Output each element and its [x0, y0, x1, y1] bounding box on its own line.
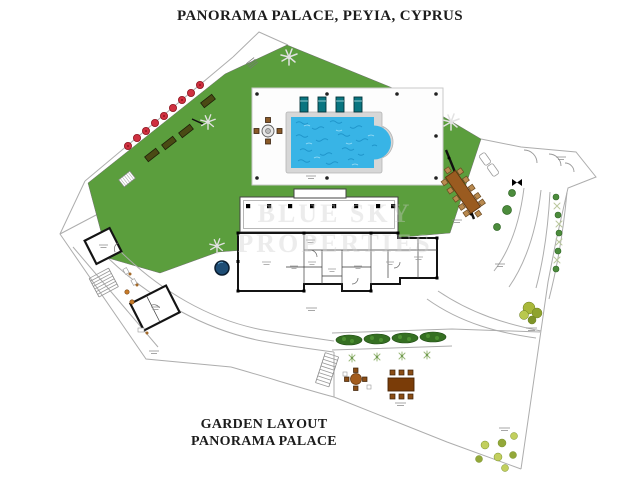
- footer-caption: GARDEN LAYOUT PANORAMA PALACE: [191, 417, 337, 449]
- garden-plan-canvas: PANORAMA PALACE, PEYIA, CYPRUS: [0, 0, 640, 480]
- tree-cluster: [520, 302, 543, 324]
- swimming-pool: [286, 112, 393, 173]
- water-feature: [215, 261, 229, 275]
- small-plants-row: [349, 351, 430, 362]
- gate-symbol-icon: [512, 179, 522, 186]
- entrance-gates: [512, 150, 574, 186]
- planting-bed: [553, 194, 562, 272]
- garden-plan-page: PANORAMA PALACE, PEYIA, CYPRUS: [0, 0, 640, 480]
- footer-line1: GARDEN LAYOUT: [201, 417, 328, 432]
- terrace-round-table-set: [343, 368, 371, 391]
- hedge-row: [336, 332, 446, 345]
- svg-text:BLUE SKY: BLUE SKY: [258, 199, 413, 228]
- path-shrubs: [494, 190, 516, 231]
- terrace-rect-table-set: [388, 370, 414, 399]
- pool-terrace: [252, 88, 443, 185]
- staircase-terrace: [316, 353, 339, 387]
- page-title: PANORAMA PALACE, PEYIA, CYPRUS: [177, 8, 463, 24]
- footer-line2: PANORAMA PALACE: [191, 434, 337, 449]
- white-loungers: [479, 152, 500, 177]
- watermark: BLUE SKY PROPERTIES: [237, 199, 432, 258]
- svg-text:PROPERTIES: PROPERTIES: [237, 229, 432, 258]
